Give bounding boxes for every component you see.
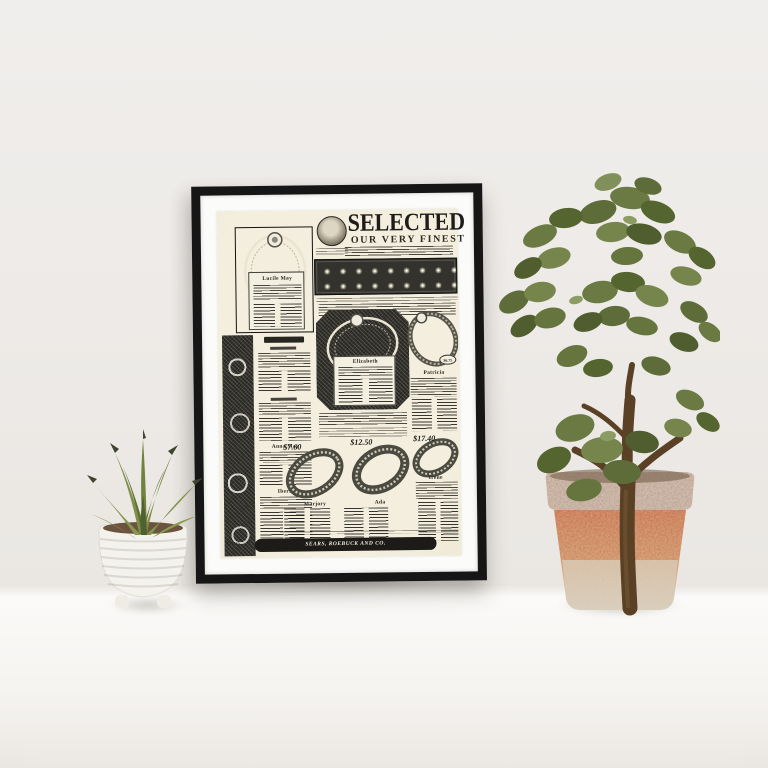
bottom-name-1: Marjory bbox=[290, 501, 340, 508]
pot-foot-right bbox=[157, 595, 171, 608]
bottom-price-1: $7.60 bbox=[283, 442, 301, 451]
jade-leaves bbox=[495, 170, 720, 505]
bottom-name-2: Ada bbox=[360, 499, 400, 505]
band-caption-line bbox=[317, 297, 458, 303]
bottom-name-3: Irene bbox=[418, 475, 454, 481]
right-section-name: Patricia bbox=[410, 370, 457, 377]
right-section-paragraph bbox=[411, 378, 457, 398]
top-left-ring-name: Lucile May bbox=[249, 275, 305, 282]
pot-foot-left bbox=[115, 595, 129, 608]
mid-paragraph-2 bbox=[319, 427, 407, 438]
top-left-price-table bbox=[254, 303, 302, 327]
bottom-ring-3 bbox=[411, 438, 459, 479]
left-section-1-paragraph bbox=[258, 352, 310, 368]
bottom-table-3 bbox=[418, 502, 458, 541]
center-price-table bbox=[339, 378, 393, 403]
footer-banner: SEARS, ROEBUCK AND CO. bbox=[254, 537, 436, 552]
jade-plant bbox=[480, 160, 720, 620]
ring-sample-band bbox=[314, 258, 457, 296]
picture-frame: Lucile May SELECTED OUR VERY FINEST bbox=[191, 183, 487, 584]
succulent-plant bbox=[85, 425, 205, 620]
medallion-caption bbox=[316, 248, 348, 255]
top-left-description-lines bbox=[253, 284, 301, 301]
right-price-text: $6.75 bbox=[443, 358, 452, 363]
pot-bottom-wash bbox=[562, 560, 678, 610]
right-section-table bbox=[412, 399, 457, 432]
left-ring-strip bbox=[222, 335, 256, 556]
center-description-lines bbox=[338, 366, 392, 377]
center-octagon-panel: Elizabeth bbox=[316, 309, 410, 410]
mid-paragraph-1 bbox=[319, 412, 407, 425]
left-section-2-table bbox=[259, 417, 311, 441]
left-column-ribbon bbox=[264, 336, 304, 342]
bottom-ring-1 bbox=[280, 446, 349, 501]
poster-subtitle: OUR VERY FINEST bbox=[351, 233, 466, 245]
bottom-price-3: $17.40 bbox=[413, 434, 435, 443]
scene: Lucile May SELECTED OUR VERY FINEST bbox=[0, 0, 768, 768]
top-left-ring-panel: Lucile May bbox=[235, 226, 314, 333]
left-section-2-heading bbox=[271, 398, 297, 401]
bottom-price-2: $12.50 bbox=[350, 438, 372, 447]
woman-portrait-medallion bbox=[317, 216, 347, 246]
top-left-text-card: Lucile May bbox=[248, 271, 305, 330]
left-section-2-paragraph bbox=[259, 402, 311, 416]
page-number: 370 ½ bbox=[226, 541, 240, 547]
masthead-intro-lines bbox=[345, 246, 453, 257]
bottom-ring-2 bbox=[349, 441, 412, 498]
footer-banner-text: SEARS, ROEBUCK AND CO. bbox=[305, 540, 385, 547]
bottom-name-3-paragraph bbox=[416, 482, 458, 500]
succulent-leaves bbox=[87, 429, 203, 539]
left-section-1-heading bbox=[270, 347, 296, 350]
poster: Lucile May SELECTED OUR VERY FINEST bbox=[216, 209, 461, 559]
center-text-card: Elizabeth bbox=[333, 355, 396, 406]
center-ring-name: Elizabeth bbox=[334, 358, 396, 365]
left-section-1-table bbox=[258, 370, 310, 393]
